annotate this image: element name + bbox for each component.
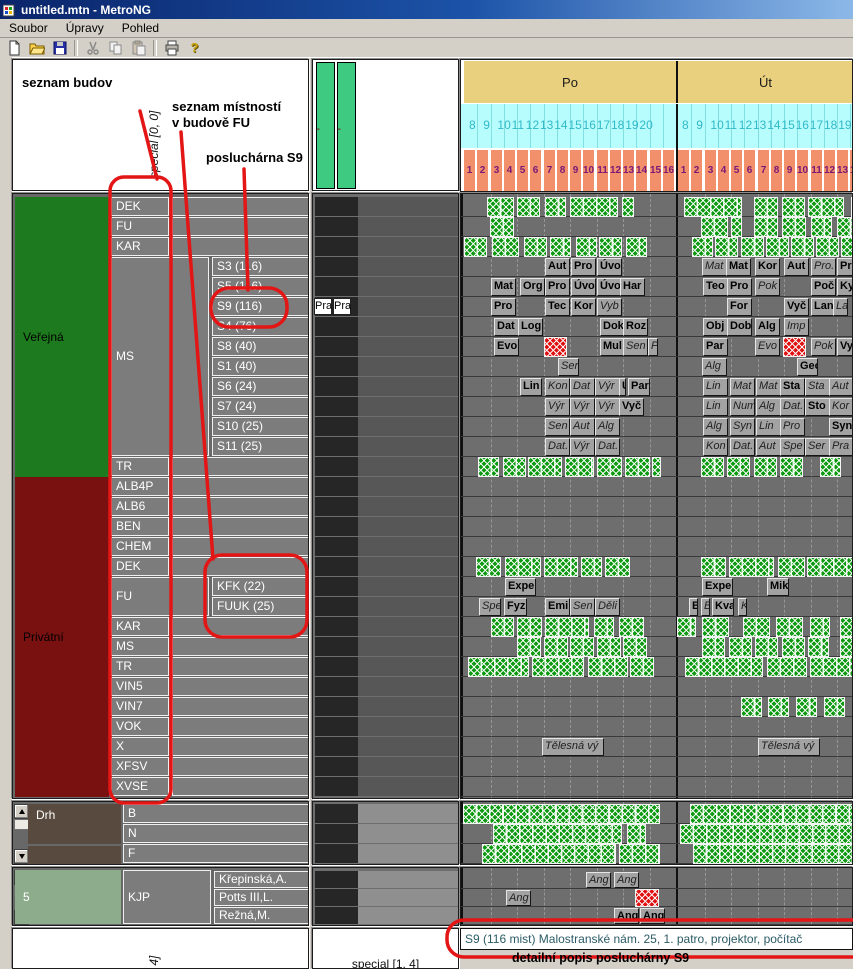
building-cell-XVSE[interactable]: XVSE [111, 777, 169, 796]
lesson-label: 3 [705, 150, 716, 191]
special-light-cell [358, 617, 458, 636]
course-cell[interactable]: Sen [623, 338, 648, 356]
building-cell-VOK[interactable]: VOK [111, 717, 169, 736]
group-block-privatni[interactable]: Privátní [15, 477, 109, 797]
scroll-thumb[interactable] [14, 819, 29, 830]
room-cell[interactable]: S5 (116) [212, 277, 309, 296]
reserved-block[interactable] [809, 638, 828, 656]
building-cell-DEK[interactable]: DEK [111, 197, 169, 216]
course-cell[interactable]: Tec [545, 298, 570, 316]
course-cell[interactable]: Alg [756, 398, 781, 416]
special-dark-cell [315, 417, 358, 436]
reserved-block[interactable] [694, 845, 853, 863]
course-cell[interactable]: Kva [712, 598, 734, 616]
reserved-block[interactable] [681, 825, 853, 843]
reserved-block[interactable] [685, 198, 741, 216]
room-cell[interactable]: S8 (40) [212, 337, 309, 356]
reserved-block[interactable] [546, 198, 565, 216]
course-cell[interactable]: Alg [595, 418, 620, 436]
course-cell[interactable]: Mat [702, 258, 727, 276]
course-cell[interactable]: La [833, 298, 848, 316]
course-cell[interactable]: Vyč [619, 398, 644, 416]
room-cell[interactable]: B [123, 804, 309, 823]
reserved-block[interactable] [653, 458, 660, 476]
course-cell[interactable]: Mat [726, 258, 751, 276]
building-cell-DEK[interactable]: DEK [111, 557, 169, 576]
reserved-block[interactable] [730, 558, 773, 576]
reserved-block[interactable] [518, 198, 539, 216]
scroll-up-button[interactable] [14, 804, 29, 819]
praktikum-label[interactable]: Praktikum z aplikač [337, 62, 356, 189]
teacher-cell[interactable]: Režná,M. [214, 907, 309, 924]
reserved-block[interactable] [631, 658, 653, 676]
reserved-block[interactable] [756, 638, 777, 656]
building-cell-KAR[interactable]: KAR [111, 237, 169, 256]
reserved-block[interactable] [838, 218, 853, 236]
course-cell[interactable]: Spe [780, 438, 805, 456]
reserved-block[interactable] [777, 618, 802, 636]
course-cell[interactable]: Dat. [730, 438, 755, 456]
course-cell[interactable]: Expe [505, 578, 536, 596]
reserved-block[interactable] [783, 638, 804, 656]
help-button[interactable]: ? [183, 39, 206, 57]
lesson-header-row: 1234567891011121314151612345678910111213… [461, 148, 852, 192]
hour-label: 20 [639, 118, 652, 132]
reserved-block[interactable] [494, 825, 621, 843]
reserved-block[interactable] [811, 658, 853, 676]
course-cell[interactable]: Kor [829, 398, 853, 416]
course-cell[interactable]: Lin [756, 418, 781, 436]
course-cell[interactable]: Aut [829, 378, 853, 396]
reserved-block[interactable] [577, 238, 596, 256]
reserved-block[interactable] [811, 618, 829, 636]
copy-button[interactable] [104, 39, 127, 57]
pra-cell[interactable]: Pra [333, 298, 351, 315]
room-cell[interactable]: S3 (116) [212, 257, 309, 276]
course-cell[interactable]: Num [730, 398, 755, 416]
save-button[interactable] [48, 39, 71, 57]
reserved-block[interactable] [703, 638, 724, 656]
hour-label: 8 [682, 118, 689, 132]
course-cell[interactable]: Aut [784, 258, 809, 276]
reserved-block[interactable] [678, 618, 695, 636]
course-cell[interactable]: Vyb [837, 338, 853, 356]
print-button[interactable] [160, 39, 183, 57]
department-cell-kjp[interactable]: KJP [123, 870, 211, 924]
cut-button[interactable] [81, 39, 104, 57]
course-cell[interactable]: Dat. [595, 438, 620, 456]
grid-row-ALB4P [461, 477, 852, 497]
reserved-block[interactable] [582, 558, 601, 576]
reserved-block[interactable] [817, 238, 838, 256]
building-cell-VIN5[interactable]: VIN5 [111, 677, 169, 696]
course-cell[interactable]: Mat [730, 378, 755, 396]
building-cell-ALB4P[interactable]: ALB4P [111, 477, 169, 496]
course-cell[interactable]: Ser [558, 358, 579, 376]
course-cell[interactable]: Alg [755, 318, 780, 336]
menu-item-1[interactable]: Úpravy [57, 20, 113, 36]
reserved-block[interactable] [595, 618, 613, 636]
reserved-block[interactable] [600, 238, 621, 256]
course-cell[interactable]: Roz [623, 318, 648, 336]
building-cell-TR[interactable]: TR [111, 657, 169, 676]
reserved-block[interactable] [626, 458, 649, 476]
reserved-block[interactable] [529, 458, 561, 476]
building-cell-MS[interactable]: MS [111, 637, 169, 656]
course-cell[interactable]: Výr [570, 438, 595, 456]
reserved-block[interactable] [483, 845, 615, 863]
course-cell[interactable]: Dat. [780, 398, 805, 416]
course-cell[interactable]: Aut [756, 438, 781, 456]
special-light-cell [358, 277, 458, 296]
drh-group-block[interactable]: Drh [28, 804, 121, 844]
building-cell-BEN[interactable]: BEN [111, 517, 169, 536]
course-cell[interactable]: Lin [520, 378, 542, 396]
lesson-label: 5 [731, 150, 742, 191]
building-cell-CHEM[interactable]: CHEM [111, 537, 169, 556]
reserved-block[interactable] [841, 638, 853, 656]
course-cell[interactable]: Pro [727, 278, 752, 296]
course-cell[interactable]: Lin [703, 398, 728, 416]
special-dark-cell [315, 737, 358, 756]
reserved-block[interactable] [571, 638, 593, 656]
reserved-block[interactable] [589, 658, 627, 676]
building-group-cell-FU[interactable]: FU [111, 577, 209, 616]
special-dark-cell [315, 517, 358, 536]
course-cell[interactable]: Fyz [504, 598, 527, 616]
room-cell[interactable]: S11 (25) [212, 437, 309, 456]
course-cell[interactable]: B [689, 598, 698, 616]
course-cell[interactable]: Ang [506, 890, 531, 906]
course-cell[interactable]: Pok [755, 278, 780, 296]
course-cell[interactable]: Dat. [545, 438, 570, 456]
reserved-block[interactable] [702, 558, 725, 576]
course-cell[interactable]: Vyb [597, 298, 622, 316]
reserved-block[interactable] [546, 618, 588, 636]
reserved-block[interactable] [477, 558, 500, 576]
course-cell[interactable]: Pro [571, 258, 596, 276]
praktikum-label-text: Praktikum z aplikač [316, 101, 320, 189]
course-cell[interactable]: Emi [545, 598, 570, 616]
reserved-block[interactable] [808, 558, 852, 576]
reserved-block[interactable] [488, 198, 513, 216]
course-cell[interactable]: Ang [614, 908, 639, 924]
course-cell[interactable]: Org [520, 278, 545, 296]
reserved-block[interactable] [742, 698, 761, 716]
reserved-block[interactable] [686, 658, 762, 676]
course-cell[interactable]: Sta [805, 378, 830, 396]
reserved-block[interactable] [571, 198, 617, 216]
course-cell[interactable]: Dat [570, 378, 595, 396]
course-cell[interactable]: Alg [702, 358, 727, 376]
reserved-block[interactable] [702, 218, 727, 236]
reserved-block[interactable] [624, 638, 646, 656]
course-cell[interactable]: Sen [570, 598, 595, 616]
room-cell[interactable]: S7 (24) [212, 397, 309, 416]
room-cell[interactable]: N [123, 824, 309, 843]
reserved-block[interactable] [702, 458, 723, 476]
course-cell[interactable]: Ser [805, 438, 830, 456]
course-cell[interactable]: Vyč [784, 298, 809, 316]
course-cell[interactable]: Pro [545, 278, 570, 296]
course-cell[interactable]: Úvo [571, 278, 596, 296]
special-light-cell [358, 397, 458, 416]
course-cell[interactable]: Poč [811, 278, 836, 296]
course-cell[interactable]: Kyb [837, 278, 853, 296]
hour-label: 13 [753, 118, 766, 132]
course-cell[interactable]: Har [620, 278, 645, 296]
reserved-block[interactable] [606, 558, 629, 576]
reserved-block[interactable] [620, 845, 659, 863]
course-cell[interactable]: Pro [491, 298, 516, 316]
course-cell[interactable]: Aut [545, 258, 570, 276]
course-cell[interactable]: Úvo [597, 278, 622, 296]
new-document-button[interactable] [2, 39, 25, 57]
reserved-block[interactable] [598, 458, 621, 476]
building-group-cell-MS[interactable]: MS [111, 257, 209, 456]
course-cell[interactable]: Aut [570, 418, 595, 436]
building-cell-KAR[interactable]: KAR [111, 617, 169, 636]
annotation-seznam-budov: seznam budov [22, 75, 112, 90]
teacher-cell[interactable]: Potts III,L. [214, 889, 309, 906]
reserved-block[interactable] [620, 618, 643, 636]
course-cell[interactable]: For [727, 298, 752, 316]
reserved-block[interactable] [465, 238, 486, 256]
reserved-block[interactable] [812, 218, 831, 236]
reserved-block[interactable] [809, 198, 843, 216]
praktikum-label[interactable]: Praktikum z aplikač [316, 62, 335, 189]
room-cell[interactable]: F [123, 844, 309, 863]
building-row-filler [172, 237, 309, 256]
special-dark-cell [315, 777, 358, 796]
course-cell[interactable]: Mik [767, 578, 789, 596]
reserved-block[interactable] [551, 238, 570, 256]
course-cell[interactable]: Mat [756, 378, 781, 396]
reserved-block[interactable] [545, 638, 567, 656]
building-row-filler [172, 217, 309, 236]
reserved-block[interactable] [492, 618, 513, 636]
room-cell[interactable]: S6 (24) [212, 377, 309, 396]
special-dark-cell [315, 537, 358, 556]
reserved-block[interactable] [768, 658, 806, 676]
room-cell[interactable]: FUUK (25) [212, 597, 309, 616]
reserved-block[interactable] [732, 218, 741, 236]
course-cell[interactable]: Par [703, 338, 728, 356]
course-cell[interactable]: Tělesná vý [758, 738, 820, 756]
reserved-block[interactable] [783, 218, 805, 236]
special-dark-cell [315, 577, 358, 596]
reserved-block[interactable] [728, 458, 749, 476]
course-cell[interactable]: Pro [780, 418, 805, 436]
course-cell[interactable]: Sto [805, 398, 830, 416]
reserved-block[interactable] [518, 638, 540, 656]
reserved-block[interactable] [755, 458, 776, 476]
reserved-block[interactable] [779, 558, 804, 576]
menu-item-2[interactable]: Pohled [113, 20, 168, 36]
course-cell[interactable]: Log [518, 318, 543, 336]
course-cell[interactable]: Výr [570, 398, 595, 416]
reserved-block[interactable] [479, 458, 498, 476]
reserved-block[interactable] [703, 618, 728, 636]
building-cell-X[interactable]: X [111, 737, 169, 756]
reserved-block[interactable] [797, 698, 816, 716]
reserved-block[interactable] [623, 198, 633, 216]
grid-row-Křepinská,A. [461, 871, 852, 889]
course-cell[interactable]: Výr [595, 398, 620, 416]
conflict-block[interactable] [545, 338, 566, 356]
course-cell[interactable]: Kon [703, 438, 728, 456]
reserved-block[interactable] [469, 658, 528, 676]
course-cell[interactable]: Syn [730, 418, 755, 436]
reserved-block[interactable] [755, 198, 777, 216]
building-cell-ALB6[interactable]: ALB6 [111, 497, 169, 516]
reserved-block[interactable] [783, 198, 804, 216]
building-cell-XFSV[interactable]: XFSV [111, 757, 169, 776]
course-cell[interactable]: Kor [755, 258, 780, 276]
course-cell[interactable]: Evo [755, 338, 780, 356]
course-cell[interactable]: Ang [640, 908, 665, 924]
course-cell[interactable]: Dob [727, 318, 752, 336]
building-cell-VIN7[interactable]: VIN7 [111, 697, 169, 716]
reserved-block[interactable] [767, 238, 788, 256]
course-cell[interactable]: Expe [702, 578, 733, 596]
course-cell[interactable]: Tělesná vý [542, 738, 604, 756]
reserved-block[interactable] [504, 458, 525, 476]
course-cell[interactable]: Teo [703, 278, 728, 296]
scroll-down-button[interactable] [14, 849, 29, 864]
course-cell[interactable]: Výr [545, 398, 570, 416]
hour-label: 11 [725, 118, 737, 132]
open-folder-button[interactable] [25, 39, 48, 57]
course-cell[interactable]: Par [628, 378, 650, 396]
reserved-block[interactable] [781, 458, 802, 476]
course-cell[interactable]: Dok [600, 318, 625, 336]
course-cell[interactable]: Ú [619, 378, 626, 396]
course-cell[interactable]: Lin [703, 378, 728, 396]
course-cell[interactable]: Sta [780, 378, 805, 396]
course-cell[interactable]: Kon [545, 378, 570, 396]
course-cell[interactable]: Dat [494, 318, 519, 336]
building-cell-TR[interactable]: TR [111, 457, 169, 476]
hour-gridline [663, 104, 664, 148]
reserved-block[interactable] [842, 238, 853, 256]
course-cell[interactable]: P [648, 338, 658, 356]
reserved-block[interactable] [716, 238, 737, 256]
hour-label: 19 [625, 118, 638, 132]
teacher-cell[interactable]: Křepinská,A. [214, 871, 309, 888]
course-cell[interactable]: Mul [600, 338, 625, 356]
reserved-block[interactable] [841, 618, 853, 636]
building-row-filler [172, 737, 309, 756]
course-cell[interactable]: Úvo [597, 258, 622, 276]
reserved-block[interactable] [693, 238, 712, 256]
group-block-verejna[interactable]: Veřejná [15, 197, 109, 477]
conflict-block[interactable] [784, 338, 805, 356]
reserved-block[interactable] [545, 558, 577, 576]
course-cell[interactable]: Imp [784, 318, 809, 336]
special-light-cell [358, 657, 458, 676]
course-cell[interactable]: B [701, 598, 710, 616]
special-axis-label: special [1, 4] [313, 957, 458, 969]
reserved-block[interactable] [518, 618, 541, 636]
hour-label: 15 [781, 118, 794, 132]
course-cell[interactable]: Pro. [811, 258, 836, 276]
course-cell[interactable]: Sen [545, 418, 570, 436]
pra-cell[interactable]: Pra [314, 298, 332, 315]
course-cell[interactable]: Děli [595, 598, 620, 616]
reserved-block[interactable] [493, 238, 518, 256]
reserved-block[interactable] [792, 238, 813, 256]
reserved-block[interactable] [628, 825, 645, 843]
special-dark-cell [315, 437, 358, 456]
course-cell[interactable]: Obj [703, 318, 728, 336]
title-bar[interactable]: untitled.mtn - MetroNG [0, 0, 853, 19]
special-dark-cell [315, 277, 358, 296]
reserved-block[interactable] [627, 238, 646, 256]
course-cell[interactable]: Ang [586, 872, 611, 888]
kjp-group-block[interactable]: 5 [15, 870, 121, 924]
reserved-block[interactable] [506, 558, 540, 576]
building-cell-FU[interactable]: FU [111, 217, 169, 236]
reserved-block[interactable] [742, 238, 763, 256]
course-cell[interactable]: Pra [829, 438, 853, 456]
reserved-block[interactable] [525, 238, 546, 256]
building-row-filler [172, 617, 309, 636]
course-cell[interactable]: Mat [491, 278, 516, 296]
grid-row-VIN7 [461, 697, 852, 717]
reserved-block[interactable] [566, 458, 593, 476]
special-light-cell [358, 597, 458, 616]
reserved-block[interactable] [825, 698, 844, 716]
reserved-block[interactable] [533, 658, 583, 676]
special-dark-cell [315, 907, 358, 924]
room-cell[interactable]: S10 (25) [212, 417, 309, 436]
drh-group-block2[interactable] [28, 846, 121, 864]
room-cell[interactable]: KFK (22) [212, 577, 309, 596]
course-cell[interactable]: Geo [797, 358, 818, 376]
reserved-block[interactable] [491, 218, 513, 236]
reserved-block[interactable] [744, 618, 769, 636]
menu-item-0[interactable]: Soubor [0, 20, 57, 36]
reserved-block[interactable] [691, 805, 853, 823]
course-cell[interactable]: Evo [494, 338, 519, 356]
reserved-block[interactable] [598, 638, 620, 656]
course-cell[interactable]: Výr [595, 378, 620, 396]
reserved-block[interactable] [730, 638, 751, 656]
annotation-detail: detailní popis posluchárny S9 [512, 951, 689, 965]
course-cell[interactable]: Pok [811, 338, 836, 356]
reserved-block[interactable] [821, 458, 840, 476]
bottom-left-panel: special [0, 4] [12, 928, 309, 969]
course-cell[interactable]: Pro [837, 258, 853, 276]
course-cell[interactable]: Kor [571, 298, 596, 316]
course-cell[interactable]: Alg [703, 418, 728, 436]
reserved-block[interactable] [464, 805, 659, 823]
course-cell[interactable]: K [738, 598, 747, 616]
conflict-block[interactable] [636, 890, 658, 906]
special-light-cell [358, 804, 458, 823]
room-cell[interactable]: S9 (116) [212, 297, 309, 316]
course-cell[interactable]: Ang [614, 872, 639, 888]
course-cell[interactable]: Syn [829, 418, 853, 436]
room-cell[interactable]: S1 (40) [212, 357, 309, 376]
room-cell[interactable]: S4 (76) [212, 317, 309, 336]
reserved-block[interactable] [769, 698, 788, 716]
course-cell[interactable]: Spe [479, 598, 501, 616]
hour-label: 12 [739, 118, 752, 132]
reserved-block[interactable] [755, 218, 777, 236]
paste-button[interactable] [127, 39, 150, 57]
